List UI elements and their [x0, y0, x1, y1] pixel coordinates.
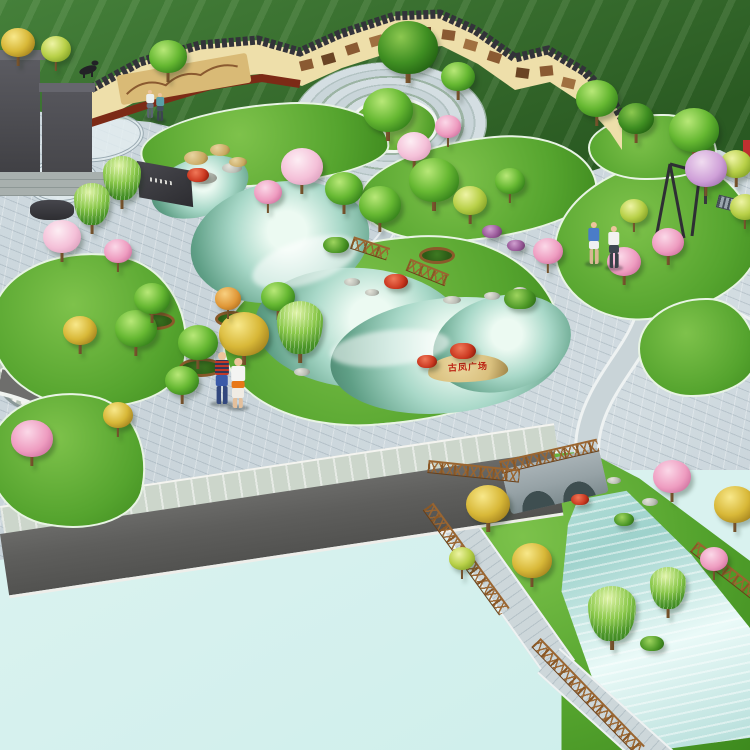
monument-block [42, 88, 92, 176]
tree-y [1, 28, 35, 58]
person-torso [146, 94, 154, 102]
pedestrian [146, 90, 155, 118]
tree-pu [507, 240, 525, 251]
tree-trunk [91, 219, 94, 233]
tree-trunk [735, 174, 738, 187]
tree-g [669, 108, 719, 152]
tree-trunk [667, 252, 670, 265]
tree-trunk [406, 59, 411, 83]
monument-cap [39, 83, 95, 92]
tree-p [435, 115, 461, 138]
landscape-rendering: 古凤广场 [0, 0, 750, 750]
rock [607, 477, 621, 484]
tree-trunk [670, 487, 673, 502]
inscription-text: 古凤广场 [448, 362, 488, 373]
tree-trunk [509, 191, 511, 203]
tree-trunk [744, 217, 746, 229]
monument-stone-bench [30, 200, 74, 220]
tree-p [254, 180, 282, 205]
tree-trunk [635, 129, 638, 143]
person-legs [590, 249, 599, 264]
tree-dg [378, 21, 438, 74]
tree-yg [453, 186, 487, 216]
monument-block [0, 56, 40, 182]
tree-trunk [610, 631, 614, 650]
tree-trunk [461, 569, 463, 579]
tree-trunk [667, 603, 670, 617]
tree-trunk [267, 202, 269, 213]
tree-trunk [55, 59, 57, 71]
tree-w [277, 301, 323, 354]
tree-r [384, 274, 408, 289]
person-torso [231, 366, 245, 381]
tree-pu [482, 225, 502, 238]
tree-b [640, 636, 664, 651]
tree-lp [281, 148, 323, 185]
tree-trunk [227, 309, 229, 319]
tree-trunk [623, 272, 626, 286]
tree-g [441, 62, 475, 92]
tree-yg [41, 36, 71, 62]
tree-b [614, 513, 634, 526]
tree-b [504, 289, 536, 309]
person-legs [157, 111, 163, 121]
tree-y [466, 485, 510, 524]
tree-trunk [300, 177, 303, 194]
tree-trunk [17, 53, 20, 67]
person-legs [217, 386, 228, 404]
tree-yg [620, 199, 648, 224]
tree-trunk [469, 211, 472, 225]
person-bag [232, 381, 245, 388]
tree-g [134, 283, 170, 315]
tree-dg [618, 103, 654, 135]
tree-p [11, 420, 53, 457]
tree-g [359, 186, 401, 223]
person-head [234, 358, 242, 366]
tree-w [650, 567, 686, 608]
rock [344, 278, 360, 286]
rock [294, 368, 310, 376]
tree-trunk [117, 425, 119, 437]
tree-y [512, 543, 552, 578]
tree-trunk [704, 179, 707, 196]
tree-g [495, 168, 525, 194]
tree-p [104, 239, 132, 264]
tree-trunk [386, 121, 390, 141]
tree-p [653, 460, 691, 493]
tree-trunk [486, 515, 490, 533]
tree-r [450, 343, 476, 359]
tree-trunk [733, 515, 736, 532]
tree-p [533, 238, 563, 264]
tree-o [215, 287, 241, 310]
rock [484, 292, 500, 300]
tree-lp [397, 132, 431, 162]
tree-trunk [166, 67, 169, 82]
person-head [218, 352, 226, 360]
person-legs [233, 398, 243, 409]
tree-trunk [151, 309, 154, 323]
pedestrian [156, 93, 165, 121]
tree-g [178, 325, 218, 360]
tree-trunk [547, 261, 549, 273]
tree-lav [685, 150, 727, 187]
tree-trunk [713, 569, 715, 580]
tree-trunk [79, 341, 82, 355]
pedestrian [214, 352, 231, 404]
tree-trunk [60, 247, 63, 262]
rock [443, 296, 461, 304]
tree-r [187, 168, 209, 182]
tree-trunk [595, 109, 598, 126]
tree-trunk [342, 199, 345, 214]
tree-r [417, 355, 437, 368]
person-lower [232, 388, 244, 398]
horse-sculpture [78, 61, 98, 79]
tree-lp [43, 220, 81, 253]
person-lower [589, 241, 599, 249]
tree-trunk [120, 193, 123, 208]
pedestrian [587, 222, 600, 264]
tree-trunk [117, 261, 119, 272]
tree-g [409, 158, 459, 202]
rock [365, 289, 379, 296]
tree-trunk [633, 221, 635, 232]
tree-p [700, 547, 728, 572]
tree-w [74, 183, 110, 224]
tree-trunk [530, 571, 533, 587]
tree-yg [730, 194, 750, 220]
person-torso [608, 232, 619, 245]
tree-r [571, 494, 589, 505]
tree-trunk [181, 391, 184, 405]
person-lower [609, 245, 619, 253]
tree-g [363, 88, 413, 132]
tree-trunk [378, 215, 381, 232]
person-legs [147, 108, 153, 118]
tree-g [165, 366, 199, 396]
tree-y [714, 486, 750, 523]
pedestrian [230, 358, 246, 408]
tree-trunk [30, 449, 33, 466]
tree-y [63, 316, 97, 346]
tree-yg [449, 547, 475, 570]
rock [642, 498, 658, 506]
tree-g [576, 80, 618, 117]
tree-trunk [447, 137, 449, 147]
person-lower [216, 375, 228, 385]
tree-trunk [432, 191, 436, 211]
tree-trunk [457, 87, 460, 101]
person-torso [588, 228, 599, 241]
pedestrian [607, 226, 620, 268]
tree-g [325, 172, 363, 205]
person-torso [156, 97, 164, 105]
tree-b [323, 237, 349, 253]
tree-trunk [134, 339, 137, 356]
tree-y [103, 402, 133, 428]
person-legs [610, 253, 619, 268]
tree-g [149, 40, 187, 73]
tree-trunk [298, 344, 302, 362]
tree-p [652, 228, 684, 256]
person-torso [215, 360, 229, 376]
tree-w [588, 586, 636, 641]
